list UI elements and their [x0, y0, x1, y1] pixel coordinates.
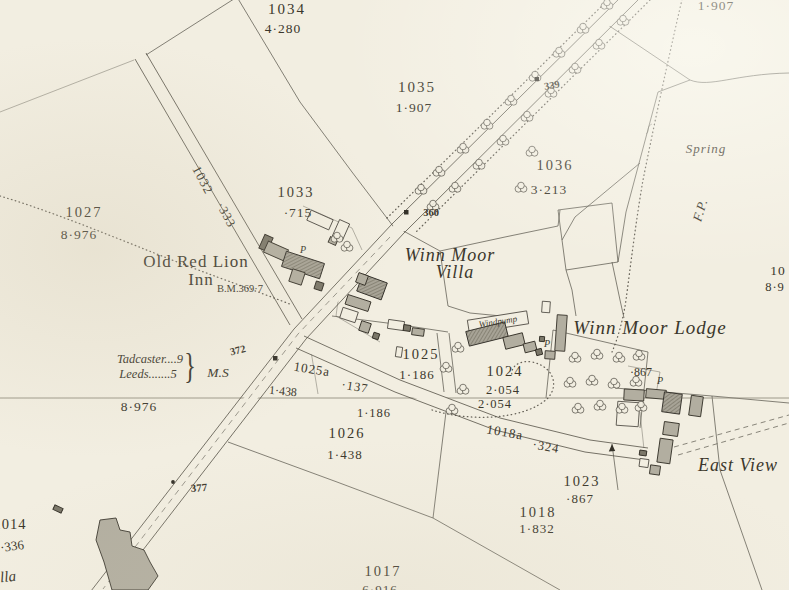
- label-benchmark-369-7: B.M.369·7: [217, 284, 263, 295]
- label-area-1023: ·867: [566, 492, 594, 505]
- label-parcel-1024: 1024: [487, 364, 524, 379]
- label-spring-label: Spring: [686, 142, 727, 155]
- label-area-1907-topright: 1·907: [698, 0, 735, 13]
- label-area-1026: 1·438: [327, 448, 362, 461]
- label-area-8976-below-line: 8·976: [121, 400, 158, 414]
- label-old-red-lion-inn-line2: Inn: [188, 271, 214, 288]
- label-area-1033: ·715: [284, 206, 313, 220]
- label-area-867-orchard: ·867: [630, 366, 652, 378]
- label-area-1024-a: 2·054: [486, 384, 520, 397]
- label-winn-moor-villa-line2: Villa: [436, 263, 475, 281]
- label-area-1438-west: 1·438: [269, 384, 298, 398]
- map-sheet[interactable]: 10344·2801·90710351·90733910363·213Sprin…: [0, 0, 789, 590]
- label-number-360: 360: [423, 208, 439, 219]
- label-area-1024-b: 2·054: [478, 398, 512, 411]
- label-parcel-1027: 1027: [66, 205, 103, 220]
- map-labels: 10344·2801·90710351·90733910363·213Sprin…: [0, 0, 789, 590]
- label-parcel-1035: 1035: [398, 80, 436, 95]
- label-area-1186-below-line: 1·186: [357, 407, 391, 420]
- label-old-red-lion-inn-line1: Old Red Lion: [143, 253, 249, 270]
- label-number-377: 377: [190, 482, 207, 494]
- label-winn-moor-lodge: Winn Moor Lodge: [573, 318, 726, 337]
- label-road-1025a: 1025a: [293, 360, 331, 379]
- label-milestone-leeds: Leeds.......5: [119, 368, 176, 381]
- label-milestone-brace: }: [184, 348, 196, 384]
- label-area-1034: 4·280: [265, 22, 302, 36]
- label-area-fragment-right-edge: 8·9: [765, 281, 785, 294]
- label-parcel-1036: 1036: [537, 158, 574, 173]
- label-footpath-label: F.P.: [690, 197, 709, 223]
- label-parcel-1034: 1034: [268, 2, 306, 17]
- label-pump-p-lodge-east: P: [657, 376, 663, 386]
- label-parcel-1033: 1033: [278, 185, 315, 200]
- label-area-1027: 8·976: [61, 228, 98, 242]
- label-area-1017-clipped: 6·916: [362, 583, 397, 590]
- label-parcel-1023: 1023: [564, 474, 601, 489]
- label-area-1036: 3·213: [531, 183, 568, 197]
- label-pump-p-inn: P: [300, 245, 306, 255]
- label-area-1025: 1·186: [399, 368, 434, 381]
- label-road-1032: 1032: [190, 164, 216, 197]
- label-east-view: East View: [698, 456, 778, 474]
- label-name-fragment-bottom-left: lla: [0, 569, 17, 586]
- label-parcel-fragment-right-edge: 10: [770, 264, 786, 278]
- label-area-1014-clipped: ·336: [0, 538, 25, 554]
- label-area-1035: 1·907: [396, 101, 433, 115]
- label-windpump-label: Windpump: [478, 315, 517, 330]
- label-parcel-1014-clipped: 1014: [0, 517, 27, 532]
- label-road-1018a: 1018a: [486, 422, 524, 441]
- label-parcel-1025: 1025: [403, 347, 440, 362]
- label-pump-p-lodge-west: P: [544, 339, 550, 349]
- label-number-372: 372: [229, 344, 247, 358]
- label-road-1032-area: ·333: [214, 200, 238, 230]
- label-road-1018a-area: ·324: [532, 439, 561, 456]
- label-number-339: 339: [543, 79, 560, 92]
- label-road-1025a-area: ·137: [341, 379, 370, 396]
- label-parcel-1018: 1018: [520, 505, 557, 520]
- label-parcel-1026: 1026: [329, 426, 366, 441]
- label-milestone-ms: M.S: [207, 366, 228, 380]
- label-area-1018: 1·832: [519, 522, 554, 535]
- label-parcel-1017: 1017: [365, 564, 402, 579]
- label-milestone-tadcaster: Tadcaster....9: [117, 353, 183, 366]
